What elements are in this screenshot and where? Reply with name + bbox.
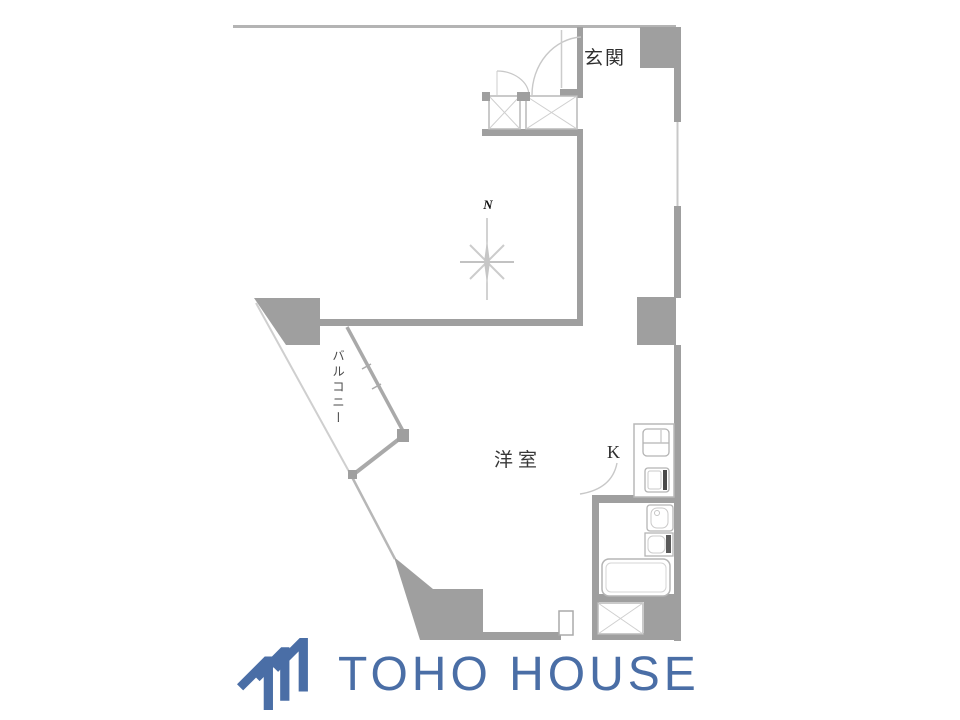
toho-house-logo-mark-icon (236, 638, 312, 712)
closet-wall-stub-left (482, 92, 490, 101)
balcony-glass-door-upper (347, 327, 403, 431)
kitchen-counter (634, 424, 674, 497)
balcony-glass-door-lower (354, 436, 403, 474)
kitchen-stove-handle (663, 470, 667, 490)
toho-house-logo: TOHO HOUSE (236, 636, 700, 714)
compass-center-spike-down (484, 262, 490, 284)
wall-block-bottom-right (644, 602, 676, 633)
wall-block-right-mid (637, 297, 676, 345)
logo-chevron-3 (272, 638, 308, 691)
toho-house-logo-text: TOHO HOUSE (338, 636, 700, 714)
floor-plan-drawing (0, 0, 960, 720)
closet-wall-stub-mid (517, 92, 530, 101)
wall-diagonal-lower (352, 477, 395, 559)
compass-center-spike-up (484, 240, 490, 262)
wall-block-bottom-left (394, 557, 483, 640)
balcony-corner-post-left (348, 470, 357, 479)
wall-block-balcony (254, 298, 320, 345)
entrance-area (482, 30, 581, 129)
kitchen-door-arc (580, 463, 617, 494)
balcony-label: バルコニー (328, 349, 347, 444)
wall-corridor-partition (577, 129, 583, 326)
floor-plan-page: 玄関 バルコニー 洋室 K N TOHO HOUSE (0, 0, 960, 720)
kitchen-area (580, 424, 674, 497)
wall-entrance-stub (560, 89, 578, 96)
wall-block-top-right (640, 27, 676, 68)
bathroom-sink (645, 533, 673, 556)
walls (233, 25, 681, 641)
bathtub (602, 559, 670, 596)
kitchen-label: K (607, 442, 620, 463)
wall-top-line (233, 25, 676, 28)
western-room-label: 洋室 (494, 445, 542, 472)
entrance-door-arc (532, 37, 581, 95)
closet-right (526, 96, 577, 129)
wall-right-middle (674, 206, 681, 298)
bathtub-outer (602, 559, 670, 596)
wall-closet-bottom (482, 129, 583, 136)
balcony-corner-post-right (397, 429, 409, 442)
wall-right-upper (674, 27, 681, 122)
wall-room-top (318, 319, 583, 326)
closet-left (489, 96, 520, 129)
bathroom-sink-faucet (666, 535, 671, 553)
bathroom-door-leaf (559, 611, 573, 635)
compass-north-label: N (477, 197, 499, 213)
entrance-label: 玄関 (584, 43, 626, 70)
closet-door-arc (497, 71, 529, 95)
bottom-closet (598, 603, 643, 634)
compass-icon (460, 218, 514, 300)
washing-machine (647, 505, 673, 531)
